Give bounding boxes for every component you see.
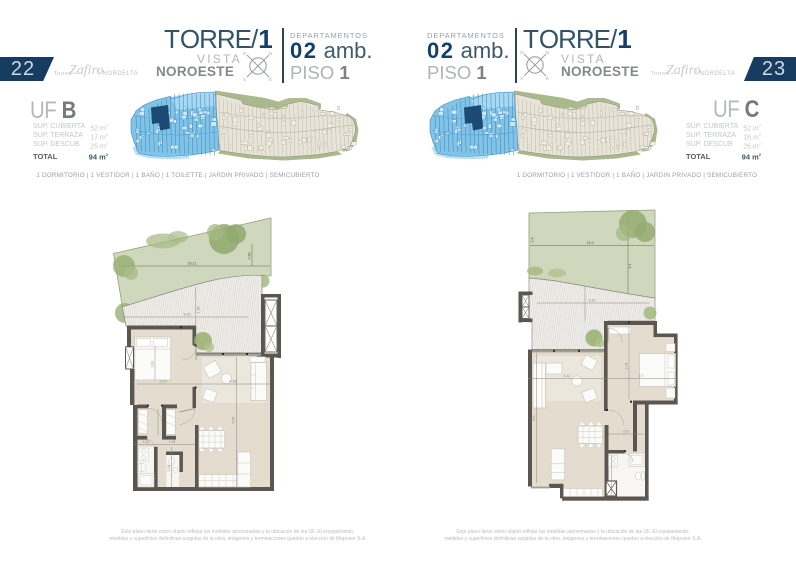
svg-text:2.06: 2.06 [167, 465, 171, 472]
svg-text:2.9: 2.9 [531, 238, 535, 243]
svg-text:E: E [269, 77, 272, 82]
svg-text:4.98: 4.98 [230, 380, 237, 384]
svg-text:16.11: 16.11 [188, 262, 197, 266]
svg-text:2.08: 2.08 [625, 363, 629, 370]
svg-text:3.92: 3.92 [589, 299, 596, 303]
svg-text:8.6: 8.6 [532, 416, 536, 421]
svg-text:3.10: 3.10 [160, 380, 167, 384]
svg-text:E: E [546, 76, 549, 81]
svg-text:5.94: 5.94 [232, 417, 236, 424]
svg-text:4.12: 4.12 [564, 374, 571, 378]
svg-text:4.4: 4.4 [628, 264, 632, 269]
svg-text:O: O [243, 51, 247, 56]
svg-text:14.9: 14.9 [587, 241, 594, 245]
svg-text:4.68: 4.68 [248, 253, 252, 260]
svg-text:1.98: 1.98 [197, 307, 201, 314]
svg-text:N: N [269, 51, 272, 56]
svg-text:5.02: 5.02 [184, 313, 191, 317]
svg-text:1.60: 1.60 [151, 361, 155, 368]
svg-text:S: S [520, 76, 523, 81]
svg-text:1.98: 1.98 [169, 440, 176, 444]
svg-text:S: S [243, 77, 246, 82]
svg-text:1.53: 1.53 [143, 440, 150, 444]
svg-text:3.10: 3.10 [623, 430, 630, 434]
svg-text:2.7: 2.7 [639, 374, 644, 378]
